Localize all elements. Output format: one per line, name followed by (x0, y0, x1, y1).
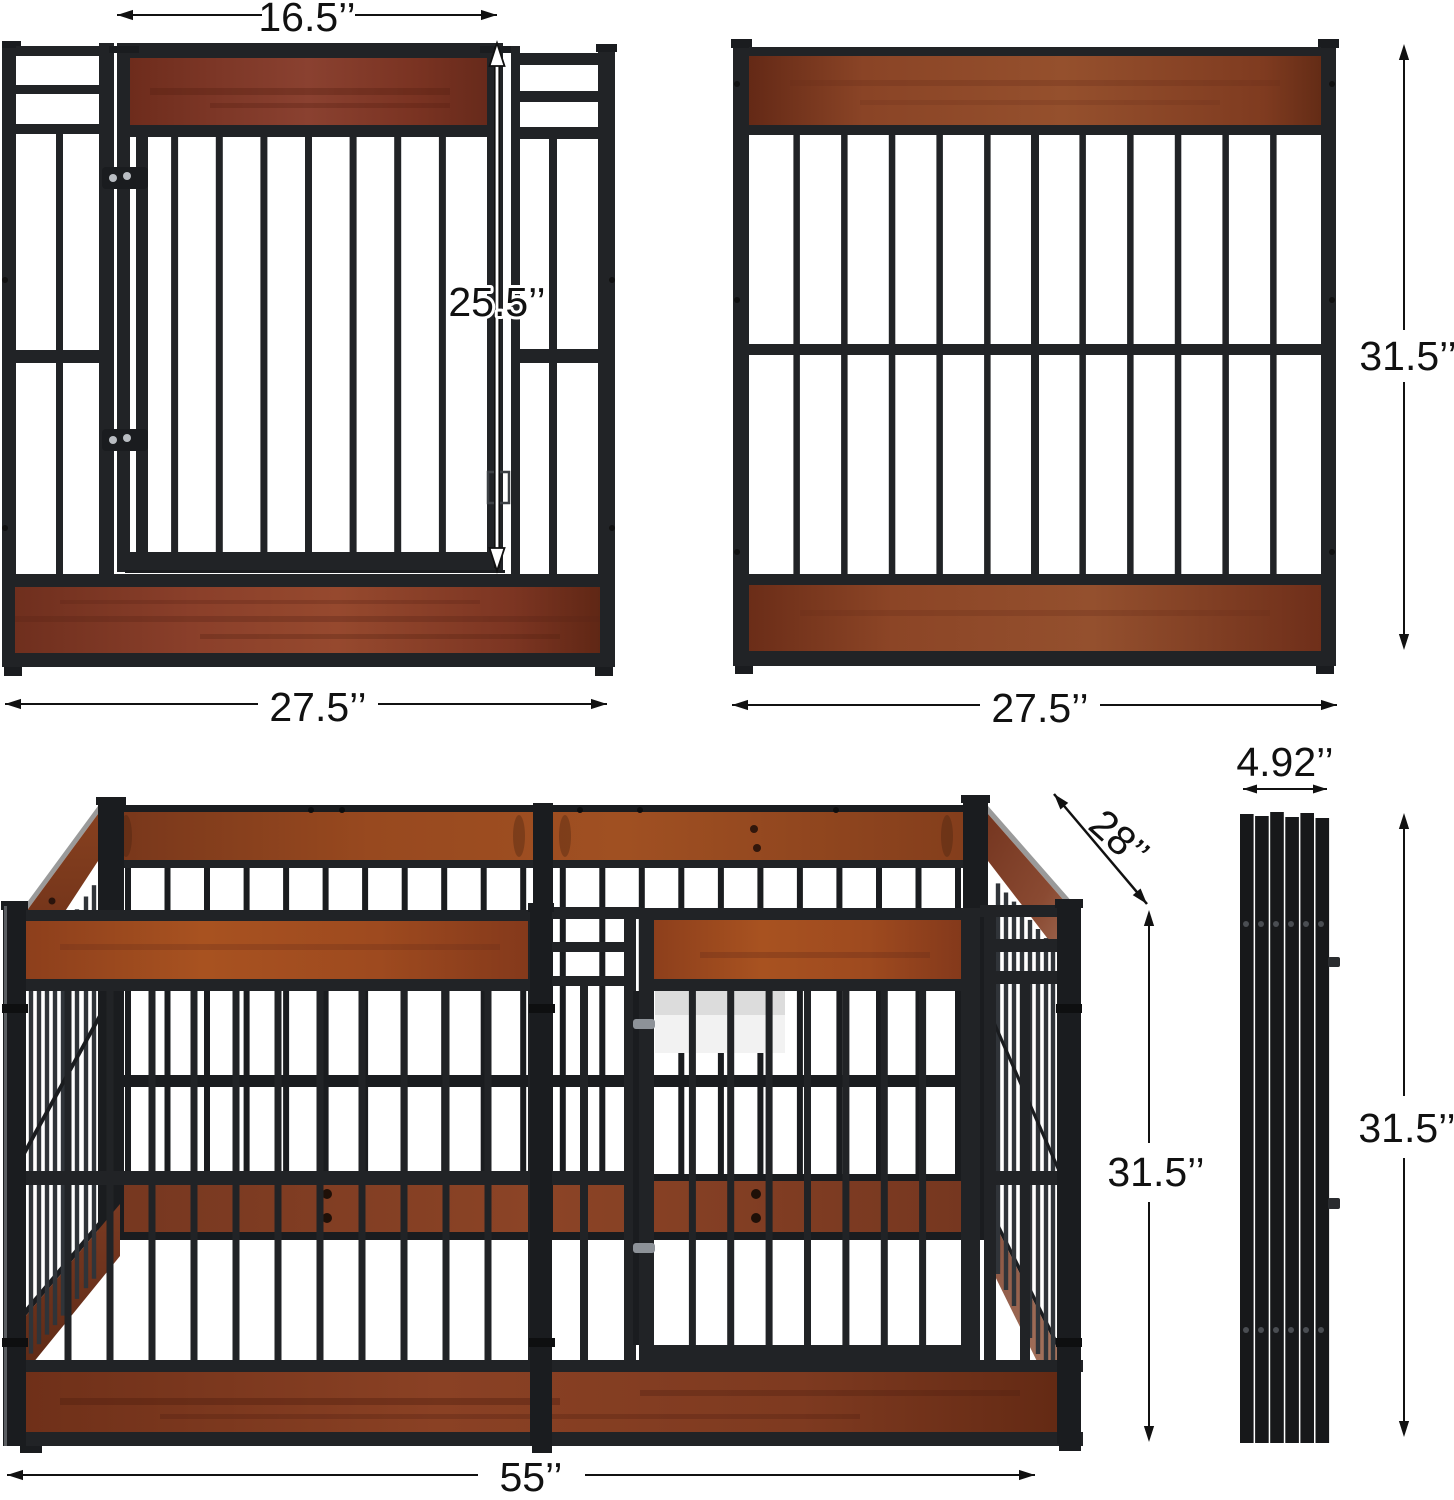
svg-text:55’’: 55’’ (499, 1454, 562, 1500)
svg-text:31.5’’: 31.5’’ (1107, 1149, 1204, 1195)
svg-text:4.92’’: 4.92’’ (1236, 739, 1333, 785)
svg-text:25.5’’: 25.5’’ (448, 279, 545, 325)
svg-text:16.5’’: 16.5’’ (258, 0, 355, 40)
svg-text:31.5’’: 31.5’’ (1358, 1105, 1454, 1151)
svg-text:27.5’’: 27.5’’ (991, 685, 1088, 731)
svg-text:31.5’’: 31.5’’ (1359, 333, 1454, 379)
svg-text:27.5’’: 27.5’’ (269, 684, 366, 730)
